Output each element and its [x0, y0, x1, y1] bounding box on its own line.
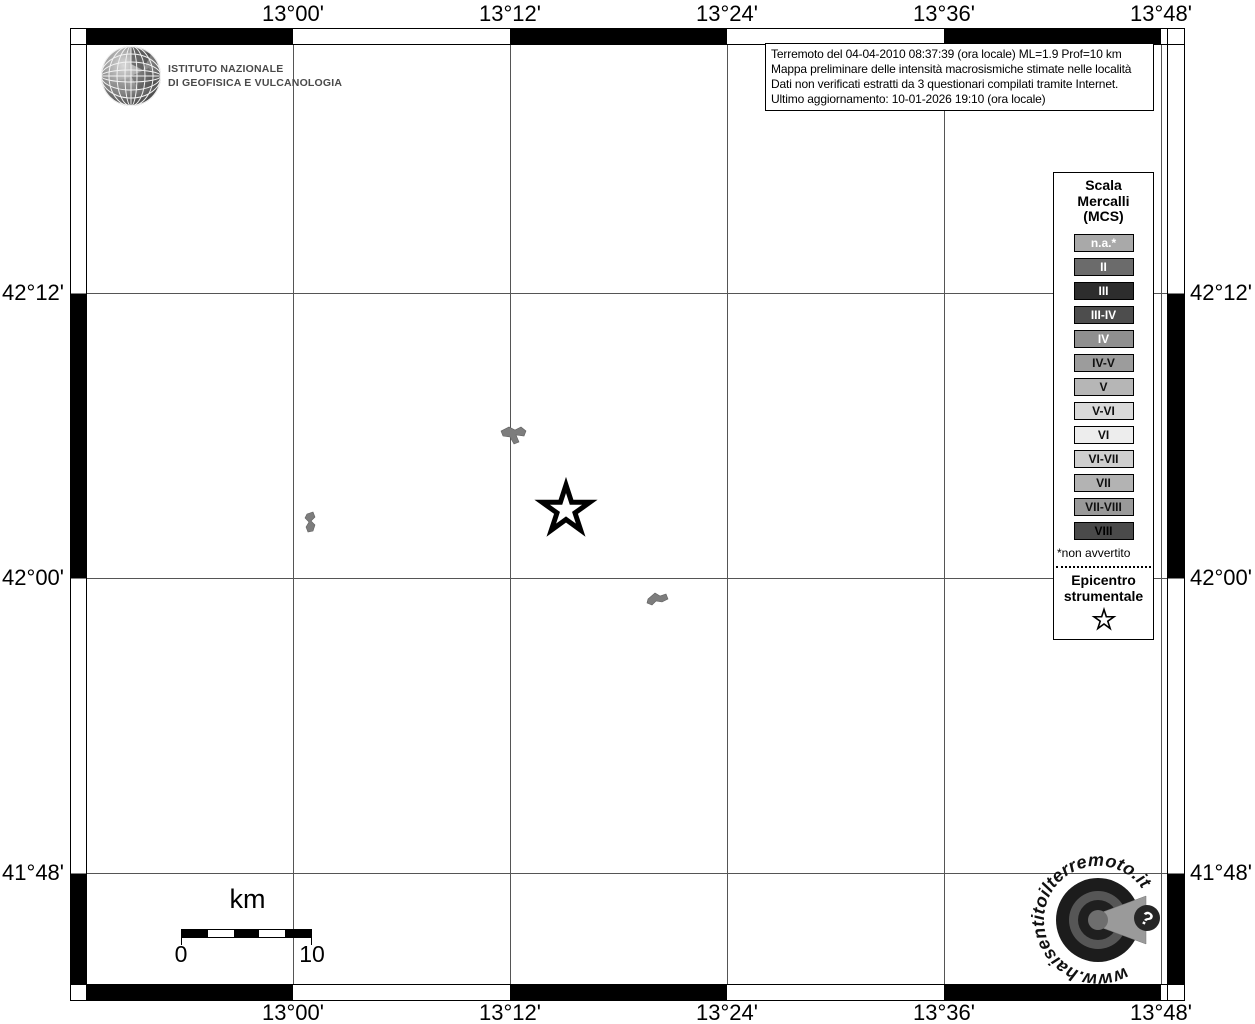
legend-title-line: Scala: [1054, 178, 1153, 194]
mcs-swatch: V-VI: [1074, 402, 1134, 420]
ingv-name-line2: DI GEOFISICA E VULCANOLOGIA: [168, 77, 342, 91]
lon-label-bottom: 13°12': [479, 1000, 541, 1024]
mcs-swatch: VII-VIII: [1074, 498, 1134, 516]
lon-label-top: 13°36': [913, 1, 975, 27]
map-area: [87, 45, 1168, 985]
legend-epicenter-label: Epicentro strumentale: [1054, 572, 1153, 604]
lat-label-left: 42°12': [0, 280, 64, 306]
scalebar-unit-label: km: [190, 884, 305, 915]
event-info-line: Dati non verificati estratti da 3 questi…: [771, 77, 1148, 92]
legend-title: Scala Mercalli (MCS): [1054, 178, 1153, 225]
ingv-name-line1: ISTITUTO NAZIONALE: [168, 63, 342, 77]
legend-swatch-list: n.a.* II III III-IV IV IV-V V V-VI VI VI…: [1054, 234, 1153, 540]
mcs-swatch: VIII: [1074, 522, 1134, 540]
event-info-box: Terremoto del 04-04-2010 08:37:39 (ora l…: [765, 43, 1154, 111]
lat-label-right: 42°12': [1190, 280, 1252, 306]
mcs-swatch: V: [1074, 378, 1134, 396]
legend-star-icon: [1089, 607, 1119, 633]
legend-epicenter-line: strumentale: [1054, 588, 1153, 604]
mcs-swatch: IV-V: [1074, 354, 1134, 372]
lon-label-top: 13°24': [696, 1, 758, 27]
ingv-globe-icon: [99, 44, 163, 108]
legend-divider: [1056, 566, 1151, 568]
mcs-swatch: IV: [1074, 330, 1134, 348]
lat-label-right: 41°48': [1190, 860, 1252, 886]
legend-title-line: (MCS): [1054, 209, 1153, 225]
scalebar-segment: [259, 930, 285, 937]
mcs-legend: Scala Mercalli (MCS) n.a.* II III III-IV…: [1053, 172, 1154, 640]
scalebar: [181, 929, 312, 938]
lat-label-left: 41°48': [0, 860, 64, 886]
mcs-swatch: VI-VII: [1074, 450, 1134, 468]
legend-title-line: Mercalli: [1054, 194, 1153, 210]
event-info-line: Terremoto del 04-04-2010 08:37:39 (ora l…: [771, 47, 1148, 62]
scalebar-segment: [182, 930, 208, 937]
lon-label-top: 13°48': [1130, 1, 1192, 27]
scalebar-start-label: 0: [161, 941, 201, 968]
scalebar-segment: [285, 930, 311, 937]
haisentitoilterremoto-logo: ? www.haisentitoilterremoto.it: [1020, 843, 1190, 1013]
scalebar-segment: [234, 930, 260, 937]
ingv-name: ISTITUTO NAZIONALE DI GEOFISICA E VULCAN…: [168, 63, 342, 90]
mcs-swatch: VI: [1074, 426, 1134, 444]
ingv-branding: ISTITUTO NAZIONALE DI GEOFISICA E VULCAN…: [99, 44, 419, 110]
event-info-line: Mappa preliminare delle intensità macros…: [771, 62, 1148, 77]
mcs-swatch: III: [1074, 282, 1134, 300]
lon-label-bottom: 13°00': [262, 1000, 324, 1024]
legend-epicenter-line: Epicentro: [1054, 572, 1153, 588]
scalebar-segment: [208, 930, 234, 937]
mcs-swatch: VII: [1074, 474, 1134, 492]
speaker-knob: [1088, 910, 1108, 930]
scalebar-end-label: 10: [292, 941, 332, 968]
legend-footnote: *non avvertito: [1054, 546, 1153, 560]
mcs-swatch: III-IV: [1074, 306, 1134, 324]
lon-label-bottom: 13°36': [913, 1000, 975, 1024]
lat-label-right: 42°00': [1190, 565, 1252, 591]
event-info-line: Ultimo aggiornamento: 10-01-2026 19:10 (…: [771, 92, 1148, 107]
lon-label-bottom: 13°24': [696, 1000, 758, 1024]
mcs-swatch: n.a.*: [1074, 234, 1134, 252]
mcs-swatch: II: [1074, 258, 1134, 276]
lat-label-left: 42°00': [0, 565, 64, 591]
lon-label-top: 13°00': [262, 1, 324, 27]
lon-label-top: 13°12': [479, 1, 541, 27]
macroseismic-map-page: 13°00' 13°12' 13°24' 13°36' 13°48' 13°00…: [0, 0, 1255, 1024]
